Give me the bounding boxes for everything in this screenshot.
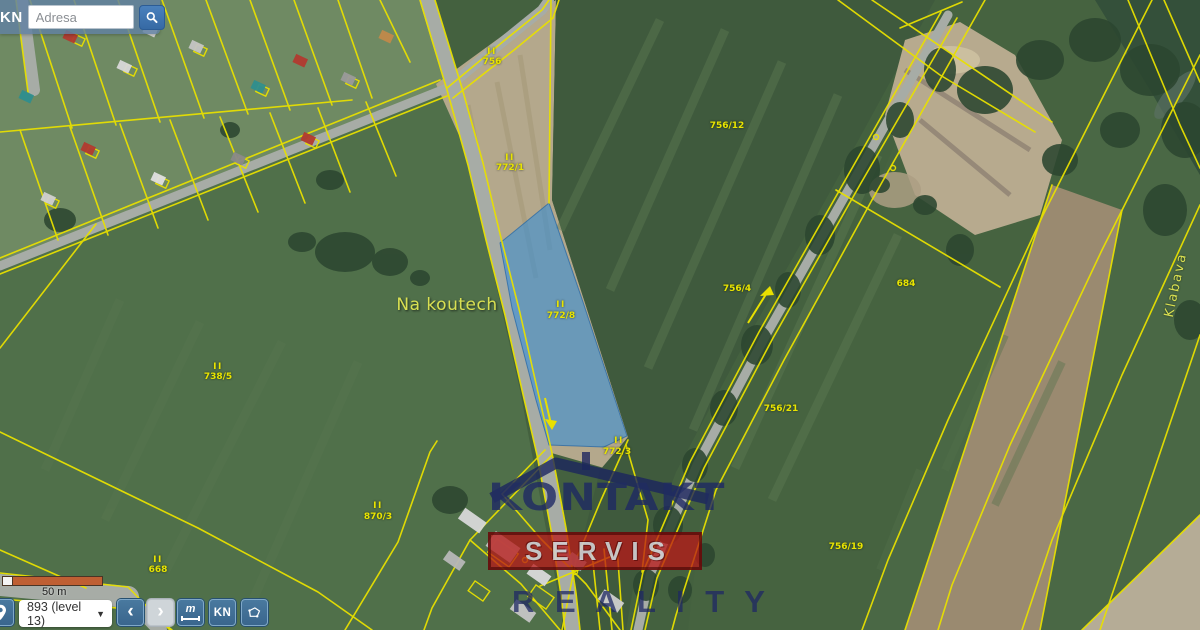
measure-tool-button[interactable]: m bbox=[177, 599, 204, 626]
measure-icon: m bbox=[181, 604, 200, 621]
search-bar: KN bbox=[0, 0, 160, 34]
chevron-down-icon: ▼ bbox=[96, 609, 112, 619]
search-icon bbox=[146, 10, 158, 25]
search-button[interactable] bbox=[139, 5, 165, 30]
address-search-input[interactable] bbox=[28, 5, 134, 29]
chevron-right-icon: › bbox=[157, 602, 163, 621]
history-back-button[interactable]: ‹ bbox=[117, 599, 144, 626]
history-forward-button[interactable]: › bbox=[147, 599, 174, 626]
locate-pin-button[interactable] bbox=[0, 599, 14, 626]
zoom-level-value: 893 (level 13) bbox=[19, 600, 96, 628]
kn-button-label: KN bbox=[214, 607, 232, 619]
polygon-icon bbox=[248, 605, 261, 620]
map-scale-bar bbox=[2, 576, 103, 586]
map-viewport[interactable]: II756II772/1II772/8II772/3756/12756/4756… bbox=[0, 0, 1200, 630]
scale-segment-white bbox=[2, 576, 13, 586]
kn-layer-label: KN bbox=[0, 9, 23, 26]
scale-segment-orange bbox=[13, 576, 103, 586]
kn-layer-button[interactable]: KN bbox=[209, 599, 236, 626]
draw-polygon-button[interactable] bbox=[241, 599, 268, 626]
map-pin-icon bbox=[0, 604, 7, 621]
chevron-left-icon: ‹ bbox=[127, 602, 133, 621]
scale-label: 50 m bbox=[42, 586, 66, 598]
zoom-level-select[interactable]: 893 (level 13) ▼ bbox=[19, 600, 112, 627]
aerial-map-artwork bbox=[0, 0, 1200, 630]
